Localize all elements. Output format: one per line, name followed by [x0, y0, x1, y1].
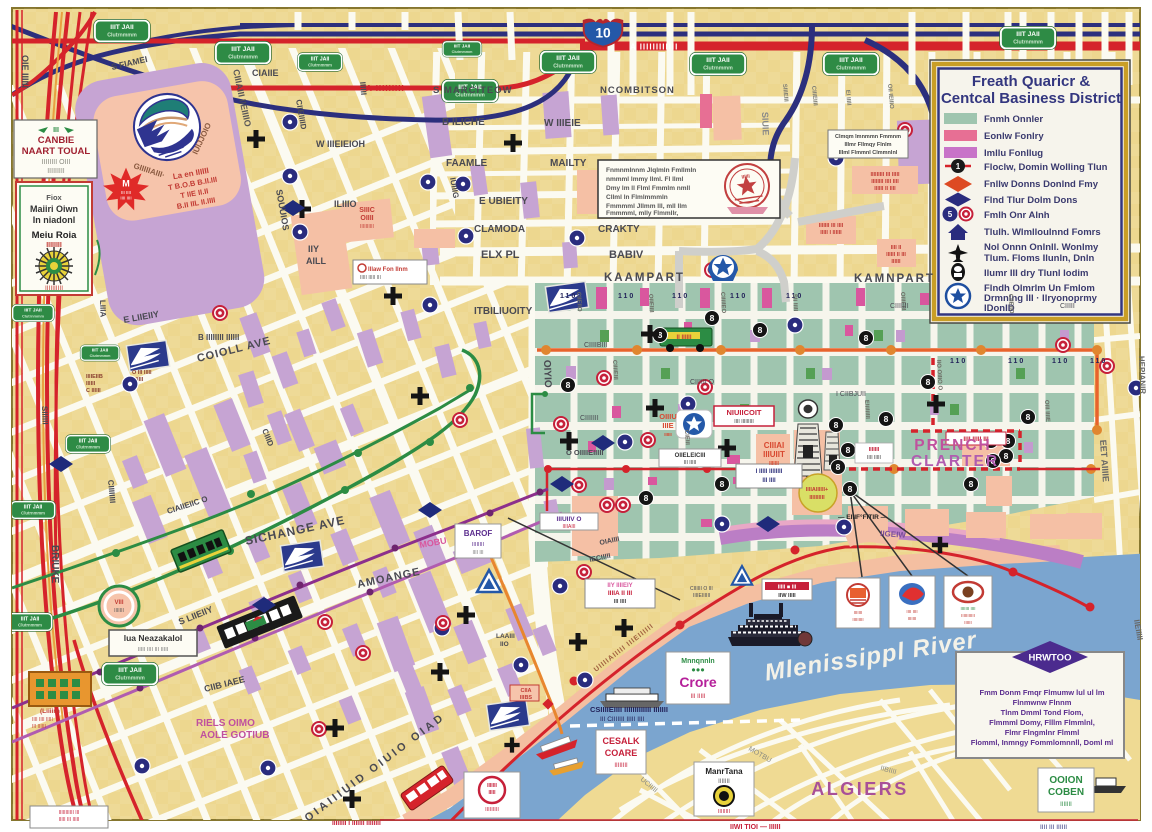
- svg-text:W IIIEIE: W IIIEIE: [544, 118, 581, 129]
- svg-text:IIIIIII: IIIIIII: [487, 783, 497, 789]
- svg-text:SIUIE: SIUIE: [760, 112, 771, 136]
- svg-text:CRAKTY: CRAKTY: [598, 224, 640, 235]
- svg-text:SII IIIII: SII IIIII: [791, 294, 798, 312]
- svg-text:Mnnqnnln: Mnnqnnln: [681, 658, 714, 665]
- svg-text:lua Neazakalol: lua Neazakalol: [124, 633, 183, 643]
- svg-text:Illaw Fon Ilnm: Illaw Fon Ilnm: [368, 267, 408, 273]
- svg-text:IIIIIII: IIIIIII: [908, 616, 917, 621]
- svg-text:CESALK: CESALK: [602, 736, 640, 746]
- svg-text:IIIIIIII: IIIIIIII: [718, 809, 731, 815]
- svg-text:IIIIEIIB: IIIIEIIB: [86, 374, 103, 380]
- svg-text:IIIIII II III: IIIIII II III: [886, 252, 906, 258]
- svg-text:III IIII: III IIII: [121, 190, 131, 195]
- svg-text:S MARCITEOW: S MARCITEOW: [433, 85, 513, 96]
- svg-text:CIIIIIII: CIIIIIII: [890, 303, 909, 310]
- svg-text:W IIIEIEIOH: W IIIEIEIOH: [316, 139, 365, 149]
- svg-text:110: 110: [950, 358, 967, 365]
- svg-text:110: 110: [1052, 358, 1069, 365]
- svg-text:Imllu Fonllug: Imllu Fonllug: [984, 148, 1043, 159]
- svg-text:Dmy lm ll Flml Fmmlm nmll: Dmy lm ll Flml Fmmlm nmll: [606, 185, 690, 192]
- svg-text:COARE: COARE: [605, 748, 638, 758]
- svg-text:5: 5: [948, 210, 953, 219]
- svg-text:IIIIIIIII III IIIII: IIIIIIIII III IIIII: [870, 172, 900, 178]
- svg-text:ALGIERS: ALGIERS: [811, 779, 909, 799]
- svg-text:CLARTER: CLARTER: [911, 453, 999, 470]
- svg-text:NIUIICOIT: NIUIICOIT: [727, 408, 762, 417]
- svg-text:IIIIIII: IIIIIII: [718, 779, 730, 785]
- svg-text:IIIE: IIIE: [662, 421, 673, 430]
- svg-text:Tlnm Dmml Tond Flom,: Tlnm Dmml Tond Flom,: [1001, 708, 1084, 717]
- svg-text:IIII IIII: IIII IIII: [906, 609, 917, 614]
- svg-text:IIWI TIOI — IIIIII: IIWI TIOI — IIIIII: [730, 824, 781, 831]
- svg-text:CIIIIIEO: CIIIIIEO: [719, 292, 726, 314]
- svg-text:ILIIIO: ILIIIO: [334, 199, 357, 209]
- svg-text:III IIIIII: III IIIIII: [32, 724, 46, 730]
- svg-text:IIIIIIIIII: IIIIIIIIII: [45, 285, 63, 292]
- svg-text:CLAMODA: CLAMODA: [474, 224, 525, 235]
- svg-text:IIII IIII IIIII: IIII IIII IIIII: [32, 717, 53, 723]
- svg-text:OIYIO: OIYIO: [541, 360, 553, 388]
- svg-text:RIELS OIMO: RIELS OIMO: [196, 718, 255, 729]
- svg-text:IIIIIIIII: IIIIIIIII: [485, 807, 499, 813]
- svg-text:IIIIII II IIII: IIIIII II IIII: [874, 186, 896, 192]
- svg-text:Eonlw Fonlry: Eonlw Fonlry: [984, 131, 1044, 142]
- svg-text:EIIIIIIIII: EIIIIIIIII: [863, 400, 870, 420]
- svg-text:IIIIA II III: IIIIA II III: [608, 590, 633, 597]
- svg-text:IIIIIIII: IIIIIIII: [614, 763, 628, 769]
- svg-text:IIImr Fllmqy Flnlm: IIImr Fllmqy Flnlm: [844, 142, 891, 148]
- svg-text:IIIIIIII I IIIIIII IIIIIIII: IIIIIIII I IIIIIII IIIIIIII: [332, 820, 381, 827]
- svg-text:Tlulh. Wlmlloulnnd Fomrs: Tlulh. Wlmlloulnnd Fomrs: [984, 227, 1101, 238]
- svg-text:II IIIIII: II IIIIII: [676, 335, 691, 341]
- svg-text:IIIIIIIIIII III: IIIIIIIIIII III: [59, 810, 80, 816]
- svg-text:LAAIII: LAAIII: [496, 633, 515, 640]
- svg-text:Freath Quaricr &: Freath Quaricr &: [972, 73, 1091, 90]
- svg-text:NAART TOUAL: NAART TOUAL: [22, 146, 91, 157]
- svg-text:III CIIIIIII IIIII IIII: III CIIIIIII IIIII IIII: [600, 716, 645, 723]
- svg-text:IIII II: IIII II: [891, 245, 902, 251]
- svg-text:Clmqm Imnmmn Fmmnm: Clmqm Imnmmn Fmmnm: [835, 134, 901, 140]
- svg-text:E UBIEITY: E UBIEITY: [479, 196, 528, 207]
- svg-text:IIY IIIIEIY: IIY IIIIEIY: [607, 583, 632, 589]
- svg-text:Fnllw Donns Donlnd Fmy: Fnllw Donns Donlnd Fmy: [984, 179, 1099, 190]
- svg-text:IIIIIII IIII: IIIIIII IIII: [960, 606, 975, 611]
- svg-text:PRENCH: PRENCH: [914, 437, 991, 454]
- svg-text:CIIEIIO: CIIEIIO: [575, 292, 582, 312]
- svg-text:IIIIIII III IIII: IIIIIII III IIII: [819, 223, 844, 229]
- svg-text:IIIIII: IIIIII: [86, 381, 96, 387]
- svg-text:IIIIII: IIIIII: [664, 432, 672, 437]
- svg-text:OIE IIIIII: OIE IIIIII: [20, 55, 30, 88]
- svg-text:Fnmh Onnler: Fnmh Onnler: [984, 114, 1043, 125]
- svg-text:KAMNPART: KAMNPART: [854, 273, 935, 285]
- svg-text:BRIUKE: BRIUKE: [49, 545, 60, 584]
- svg-text:Flomml, Inmngy Fommlomnnll, Do: Flomml, Inmngy Fommlomnnll, Doml ml: [971, 738, 1114, 747]
- svg-text:Cllml ln Flmlmmmln: Cllml ln Flmlmmmln: [606, 194, 668, 201]
- svg-text:nmmml lmmy llml. Fl llml: nmmml lmmy llml. Fl llml: [606, 176, 683, 183]
- svg-text:IIIIIIIIII: IIIIIIIIII: [809, 495, 825, 501]
- svg-text:IIIBS: IIIBS: [520, 695, 533, 701]
- svg-text:IIO: IIO: [500, 641, 509, 648]
- svg-text:IIIUIIV O: IIIUIIV O: [557, 516, 582, 523]
- svg-text:Crore: Crore: [679, 674, 717, 690]
- svg-text:Fmmmml, mlly Flmmllr,: Fmmmml, mlly Flmmllr,: [606, 210, 678, 217]
- svg-text:OOION: OOION: [1049, 775, 1082, 786]
- svg-text:Fmmmml Jllmm lll, mll llm: Fmmmml Jllmm lll, mll llm: [606, 203, 687, 210]
- svg-text:110: 110: [618, 293, 635, 300]
- svg-text:Flmmml Domy, Flllm Flmmlnl,: Flmmml Domy, Flllm Flmmlnl,: [989, 718, 1095, 727]
- svg-text:OIIEIIII: OIIEIIII: [647, 294, 654, 313]
- svg-text:CIIIAI: CIIIAI: [764, 441, 784, 450]
- svg-text:IIIII ■ III: IIIII ■ III: [778, 585, 797, 591]
- svg-text:B ILICHE: B ILICHE: [442, 117, 485, 128]
- svg-text:Nol Onnn Onlnll. Wonlmy: Nol Onnn Onlnll. Wonlmy: [984, 242, 1099, 253]
- svg-text:IIIIII: IIIIII: [891, 259, 901, 265]
- svg-text:CIIIIEIII: CIIIIEIII: [611, 360, 618, 381]
- svg-text:10: 10: [595, 26, 611, 41]
- svg-text:Flmr Flngmlnr Flmml: Flmr Flngmlnr Flmml: [1005, 728, 1080, 737]
- svg-text:CSIIIIEIIII IIIIIIIIIIIII III: CSIIIIEIIII IIIIIIIIIIIII IIIIIII: [590, 705, 668, 714]
- svg-text:IIIUIIT: IIIUIIT: [763, 450, 785, 459]
- svg-text:1: 1: [956, 162, 961, 171]
- svg-text:KAAMPART: KAAMPART: [604, 272, 685, 284]
- svg-text:●●●: ●●●: [691, 665, 705, 674]
- svg-text:IIIIII: IIIIII: [964, 620, 972, 625]
- svg-text:Flnd Tlur Dolm Dons: Flnd Tlur Dolm Dons: [984, 195, 1077, 206]
- svg-text:110: 110: [730, 293, 747, 300]
- svg-text:A IIIIIIIIIIII: A IIIIIIIIIIII: [630, 43, 678, 52]
- svg-text:IIY: IIY: [308, 244, 319, 254]
- svg-text:110: 110: [1008, 358, 1025, 365]
- svg-text:BABIV: BABIV: [609, 249, 644, 261]
- svg-text:CIIIIII O: CIIIIII O: [690, 379, 715, 386]
- svg-text:IIII IIIII: IIII IIIII: [867, 455, 881, 461]
- svg-text:Floclw, Domin Wolling Tlun: Floclw, Domin Wolling Tlun: [984, 162, 1108, 173]
- svg-text:IIIml Flmmnl Clmmnlnl: IIIml Flmmnl Clmmnlnl: [839, 150, 898, 156]
- svg-text:SIIIC: SIIIC: [359, 207, 375, 214]
- svg-text:OIII IIIIE: OIII IIIIE: [1043, 400, 1050, 422]
- svg-text:ELX PL: ELX PL: [481, 249, 520, 261]
- svg-text:IIIIIIIIIII: IIIIIIIIIII: [961, 613, 975, 618]
- svg-text:IIII IIII: IIII IIII: [120, 196, 131, 201]
- svg-text:HEPIANIR: HEPIANIR: [1137, 356, 1147, 395]
- svg-text:Fnmnmlnnm Jlqlmln Fmllmln: Fnmnmlnnm Jlqlmln Fmllmln: [606, 167, 696, 174]
- svg-text:Centcal Basiness District: Centcal Basiness District: [941, 90, 1121, 107]
- svg-text:CANBIE: CANBIE: [38, 135, 74, 146]
- svg-text:NCOMBITSON: NCOMBITSON: [600, 85, 675, 96]
- svg-text:CIIIIIII: CIIIIIII: [580, 415, 599, 422]
- svg-text:Fmm Donm Fmqr Flmumw lul ul lm: Fmm Donm Fmqr Flmumw lul ul lm: [979, 688, 1104, 697]
- svg-text:BAROF: BAROF: [464, 529, 493, 538]
- svg-text:OIIIU: OIIIU: [659, 412, 677, 421]
- svg-text:IIW IIIII: IIW IIIII: [778, 593, 796, 599]
- svg-text:IIIIIIIIII: IIIIIIIIII: [360, 224, 374, 230]
- svg-text:IIIIAIII: IIIIAIII: [562, 524, 575, 530]
- svg-text:ITBILIUOITY: ITBILIUOITY: [474, 306, 533, 317]
- svg-text:OIIII: OIIII: [360, 215, 373, 222]
- svg-text:C IIIIII: C IIIIII: [86, 388, 101, 394]
- svg-text:HRWTOO: HRWTOO: [1029, 653, 1072, 664]
- svg-text:A IIIIIIIII: A IIIIIIIII: [366, 84, 405, 93]
- svg-text:MAILTY: MAILTY: [550, 158, 587, 169]
- svg-text:IIIIII: IIIIII: [741, 173, 751, 180]
- svg-text:Fiox: Fiox: [46, 193, 62, 202]
- svg-text:B IIIIIIII IIIIII: B IIIIIIII IIIIII: [198, 333, 239, 342]
- svg-text:Maiiri Oiwn: Maiiri Oiwn: [30, 204, 78, 214]
- svg-text:CIIIII: CIIIII: [1060, 303, 1075, 310]
- svg-text:LIIIA: LIIIA: [98, 300, 108, 318]
- svg-text:110: 110: [672, 293, 689, 300]
- svg-text:In niadonl: In niadonl: [33, 215, 76, 225]
- svg-text:VIII: VIII: [114, 600, 123, 606]
- svg-text:IIIIIII: IIIIIII: [854, 610, 863, 615]
- svg-text:IIIIIIII IIII IIII: IIIIIIII IIII IIII: [871, 179, 899, 185]
- svg-text:IIIIIII: IIIIIII: [114, 608, 124, 614]
- svg-text:I CIIBJUII: I CIIBJUII: [836, 391, 866, 398]
- svg-text:ManrTana: ManrTana: [705, 767, 743, 776]
- svg-text:IIIII I IIIIII: IIIII I IIIIII: [820, 230, 842, 236]
- svg-text:CIIIIBIII: CIIIIBIII: [584, 342, 607, 349]
- svg-text:FAAMLE: FAAMLE: [446, 158, 487, 169]
- svg-text:CIIEIIO: CIIEIIO: [1007, 294, 1014, 314]
- svg-text:IIGEIW: IIGEIW: [880, 529, 907, 540]
- svg-text:III IIIII: III IIIII: [684, 460, 697, 466]
- svg-text:O OIIIIEIIIII: O OIIIIEIIIII: [566, 448, 604, 457]
- svg-text:III IIII: III IIII: [614, 599, 627, 605]
- svg-text:III IIIII: III IIIII: [690, 694, 705, 700]
- svg-text:IIIIIII: IIIIIII: [1060, 802, 1072, 808]
- svg-text:OIIELEICIII: OIIELEICIII: [675, 453, 706, 459]
- svg-text:O III IIIII: O III IIIII: [132, 370, 152, 376]
- svg-text:IIIII: IIIII: [489, 790, 497, 796]
- svg-text:Meiu Roia: Meiu Roia: [32, 230, 78, 241]
- svg-text:CIIIIII O III: CIIIIII O III: [690, 586, 713, 592]
- svg-text:IIIIAIIIIII+: IIIIAIIIIII+: [806, 487, 828, 493]
- svg-text:CIAIIE: CIAIIE: [252, 68, 279, 78]
- svg-text:CIEIII: CIEIII: [683, 430, 690, 446]
- svg-text:IIII III: IIII III: [472, 550, 483, 556]
- svg-text:Ilumr III dry Tlunl Iodim: Ilumr III dry Tlunl Iodim: [984, 268, 1089, 279]
- svg-text:IIIIII: IIIIII: [358, 81, 368, 95]
- svg-text:IIIII III IIIII: IIIII III IIIII: [59, 817, 80, 823]
- svg-text:IIIII IIII III IIIII: IIIII IIII III IIIII: [138, 647, 169, 653]
- svg-text:IIIIIIII: IIIIIIII: [472, 542, 485, 548]
- svg-text:I IIIII IIIIIIII: I IIIII IIIIIIII: [756, 469, 783, 475]
- svg-text:III: III: [53, 127, 59, 134]
- svg-text:COBEN: COBEN: [1048, 787, 1084, 798]
- svg-text:Flnmwnw Flnnm: Flnmwnw Flnnm: [1013, 698, 1072, 707]
- svg-text:Fmlh Onr Alnh: Fmlh Onr Alnh: [984, 210, 1050, 221]
- svg-text:IIIIIIIII: IIIIIIIII: [852, 617, 863, 622]
- svg-text:AOLE GOTIUB: AOLE GOTIUB: [200, 730, 269, 741]
- svg-text:CIIA: CIIA: [521, 688, 532, 694]
- svg-text:IIII IIIIIIIII: IIII IIIIIIIII: [734, 419, 753, 425]
- svg-text:IIIIIIIII: IIIIIIIII: [47, 168, 65, 175]
- svg-text:110: 110: [560, 293, 577, 300]
- svg-text:IIIII IIIII III: IIIII IIIII III: [360, 275, 381, 281]
- svg-text:IIII III IIIIII: IIII III IIIIII: [1040, 824, 1067, 831]
- svg-text:IIIIIII: IIIIIII: [869, 447, 880, 453]
- svg-text:M: M: [122, 179, 130, 189]
- svg-text:110: 110: [1090, 358, 1107, 365]
- svg-text:IIIIIII: IIIIIII: [769, 461, 779, 467]
- svg-text:III IIII: III IIII: [762, 478, 776, 484]
- svg-text:IIIIIIII OIII: IIIIIIII OIII: [42, 159, 71, 166]
- svg-text:IIIIEIIIIII: IIIIEIIIIII: [693, 593, 710, 599]
- svg-text:AILL: AILL: [306, 256, 326, 266]
- svg-text:(Liiiirn: (Liiiirn: [40, 708, 60, 715]
- svg-text:Tlum. Floms Ilunln, Dnln: Tlum. Floms Ilunln, Dnln: [984, 253, 1094, 264]
- svg-text:SIIIIII: SIIIIII: [40, 406, 50, 425]
